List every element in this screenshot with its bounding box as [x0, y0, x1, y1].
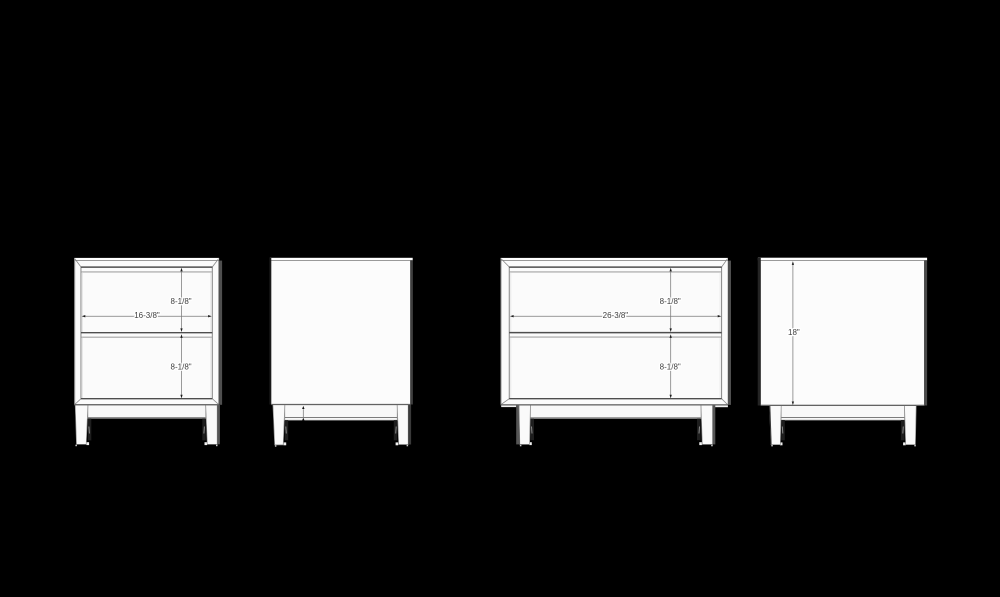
- svg-text:8-1/8": 8-1/8": [171, 362, 192, 371]
- svg-text:18": 18": [788, 328, 800, 337]
- svg-text:8-1/8": 8-1/8": [171, 297, 192, 306]
- svg-text:26-3/8": 26-3/8": [603, 311, 629, 320]
- svg-text:16-3/8": 16-3/8": [134, 311, 160, 320]
- svg-text:8-1/8": 8-1/8": [660, 297, 681, 306]
- svg-text:8-1/8": 8-1/8": [660, 362, 681, 371]
